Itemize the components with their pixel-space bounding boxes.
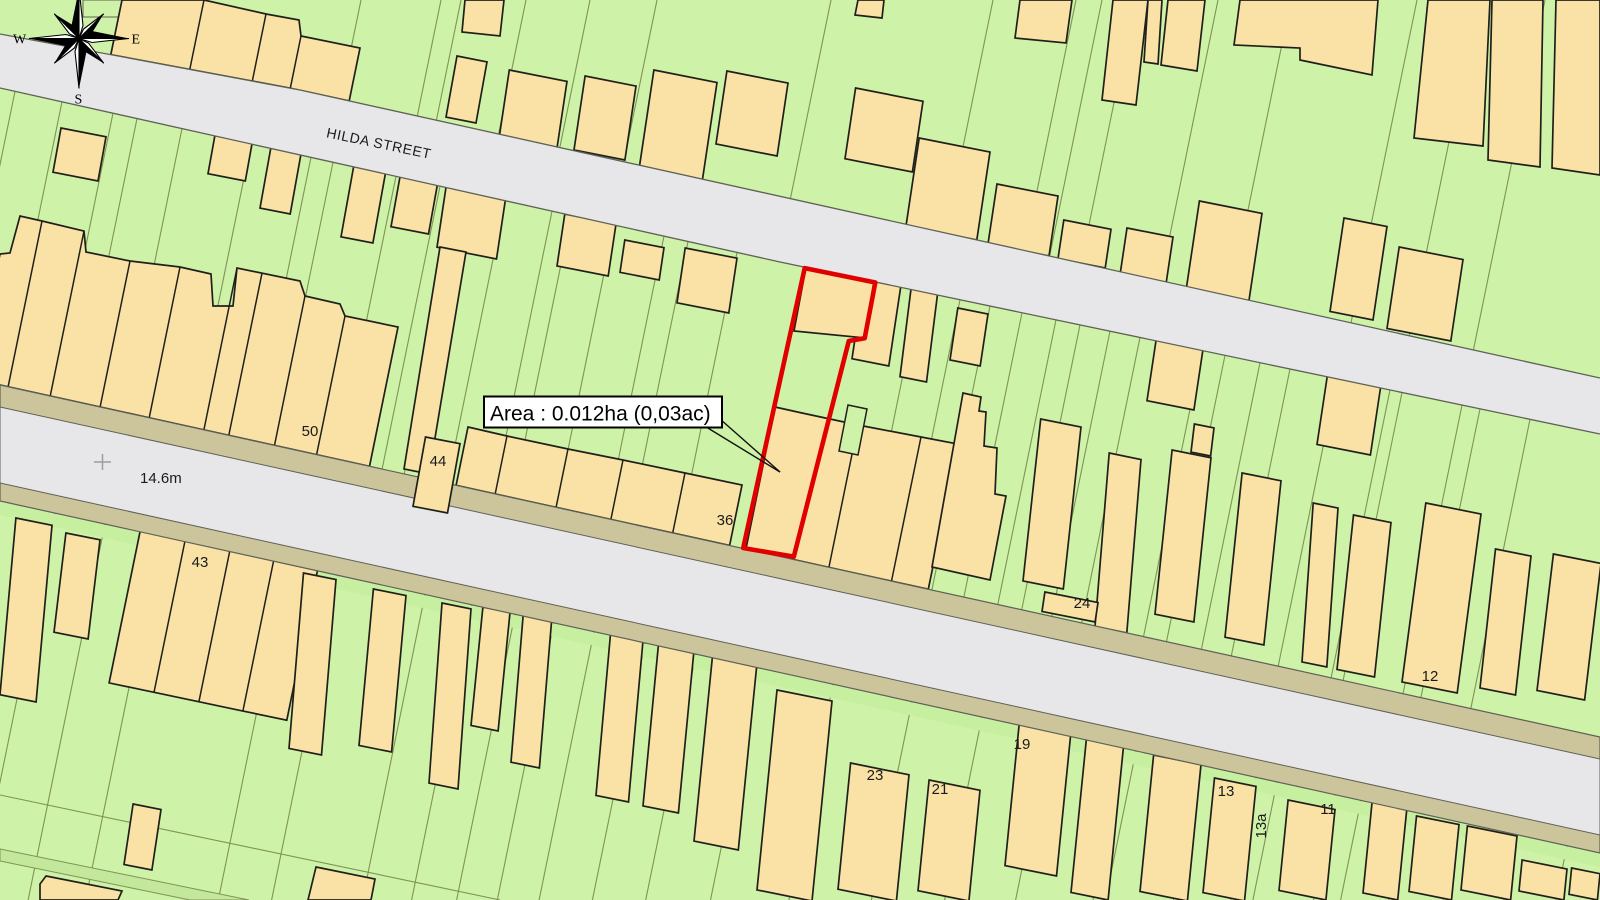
svg-text:24: 24 xyxy=(1074,595,1091,612)
svg-text:44: 44 xyxy=(430,453,447,470)
svg-text:23: 23 xyxy=(867,767,884,784)
svg-text:12: 12 xyxy=(1422,668,1439,685)
svg-text:Area : 0.012ha (0,03ac): Area : 0.012ha (0,03ac) xyxy=(490,403,711,426)
svg-text:50: 50 xyxy=(302,423,319,440)
svg-text:W: W xyxy=(13,33,27,48)
svg-text:19: 19 xyxy=(1014,736,1031,753)
svg-text:11: 11 xyxy=(1320,801,1336,818)
svg-text:13a: 13a xyxy=(1253,813,1270,839)
svg-text:14.6m: 14.6m xyxy=(140,470,182,487)
svg-text:43: 43 xyxy=(192,554,209,571)
svg-text:21: 21 xyxy=(932,781,949,798)
svg-text:S: S xyxy=(75,93,83,108)
svg-text:13: 13 xyxy=(1218,783,1235,800)
svg-text:E: E xyxy=(132,33,141,48)
svg-text:36: 36 xyxy=(717,512,734,529)
